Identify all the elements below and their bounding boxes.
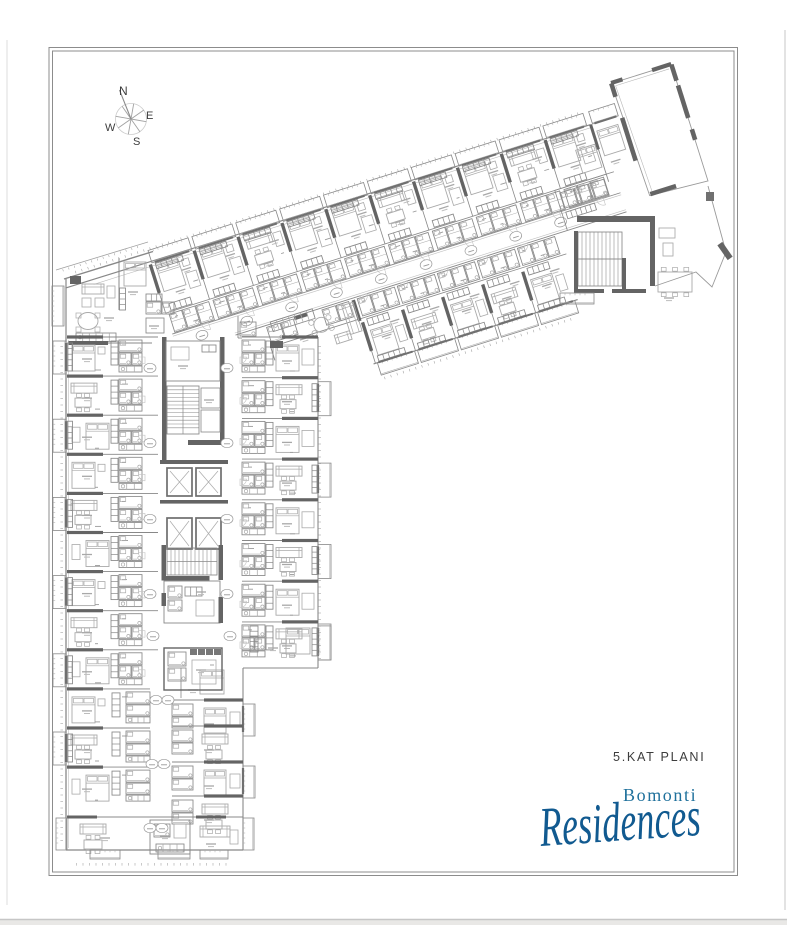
svg-text:S: S <box>133 136 140 148</box>
svg-text:E: E <box>146 110 153 122</box>
svg-text:W: W <box>105 122 116 134</box>
svg-text:N: N <box>119 84 128 98</box>
svg-text:Residences: Residences <box>537 786 703 859</box>
svg-text:5.KAT PLANI: 5.KAT PLANI <box>613 750 705 764</box>
